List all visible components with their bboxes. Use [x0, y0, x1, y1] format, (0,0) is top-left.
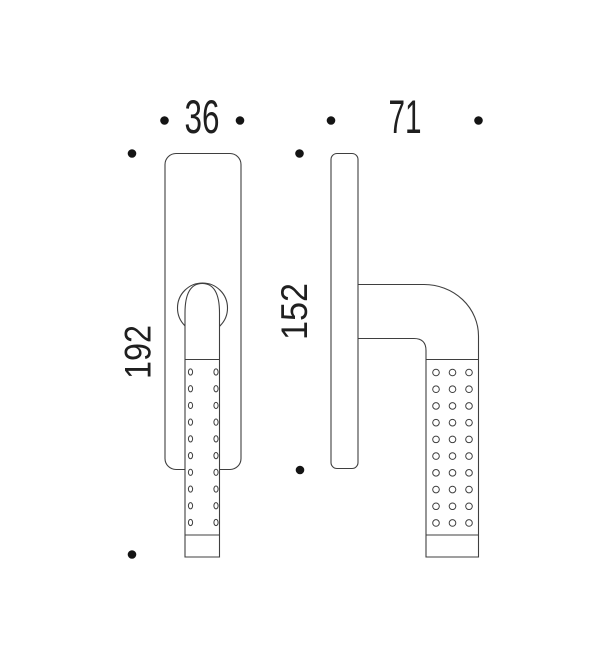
knurl-dot: [449, 453, 456, 460]
knurl-dot: [188, 419, 192, 425]
knurl-dot: [433, 403, 440, 410]
dimension-marker-dot: [128, 550, 137, 559]
knurl-dot: [466, 403, 473, 410]
dimension-marker-dot: [474, 116, 483, 125]
knurl-dot: [433, 436, 440, 443]
knurl-dot: [188, 469, 192, 475]
front-view: [165, 154, 241, 558]
dimension-marker-dot: [295, 149, 304, 158]
knurl-dot: [214, 519, 218, 525]
knurl-dot: [433, 520, 440, 527]
knurl-dot: [433, 503, 440, 510]
knurl-dot: [433, 386, 440, 393]
knurl-dot: [433, 419, 440, 426]
knurl-dot: [433, 369, 440, 376]
knurl-dot: [466, 386, 473, 393]
knurl-dot: [188, 519, 192, 525]
knurl-dot: [449, 403, 456, 410]
front-height-dimension: 192: [118, 325, 159, 379]
side-view: [331, 154, 479, 558]
knurl-dot: [466, 453, 473, 460]
dimension-marker-dot: [327, 116, 336, 125]
knurl-dot: [214, 469, 218, 475]
knurl-dot: [214, 453, 218, 459]
knurl-dot: [449, 503, 456, 510]
knurl-dot: [214, 369, 218, 375]
knurl-dot: [214, 486, 218, 492]
knurl-dot: [466, 486, 473, 493]
knurl-dot: [214, 419, 218, 425]
knurl-dot: [433, 486, 440, 493]
dimension-marker-dot: [296, 466, 305, 475]
knurl-dot: [449, 386, 456, 393]
knurl-dot: [188, 486, 192, 492]
knurl-dot: [466, 436, 473, 443]
side-backplate: [331, 154, 358, 469]
knurl-dot: [433, 453, 440, 460]
knurl-dot: [449, 369, 456, 376]
knurl-dot: [466, 520, 473, 527]
dimension-marker-dot: [236, 116, 245, 125]
side-handle-outline: [358, 285, 479, 558]
knurl-dot: [188, 503, 192, 509]
knurl-dot: [188, 369, 192, 375]
knurl-dot: [466, 470, 473, 477]
dimension-marker-dot: [128, 149, 137, 158]
knurl-dot: [449, 486, 456, 493]
knurl-dot: [466, 503, 473, 510]
side-depth-dimension: 71: [389, 90, 422, 143]
technical-drawing: 36 71 192 152: [0, 0, 600, 670]
knurl-dot: [188, 402, 192, 408]
knurl-dot: [449, 419, 456, 426]
front-width-dimension: 36: [185, 90, 220, 143]
knurl-dot: [449, 520, 456, 527]
knurl-dot: [188, 453, 192, 459]
plate-height-dimension: 152: [274, 283, 315, 340]
knurl-dot: [188, 436, 192, 442]
knurl-dot: [449, 470, 456, 477]
dimension-marker-dot: [160, 116, 169, 125]
knurl-dot: [449, 436, 456, 443]
knurl-dot: [214, 402, 218, 408]
knurl-dot: [214, 503, 218, 509]
knurl-dot: [214, 436, 218, 442]
knurl-dot: [433, 470, 440, 477]
knurl-dot: [214, 386, 218, 392]
knurl-dot: [466, 419, 473, 426]
knurl-dot: [466, 369, 473, 376]
drawing-canvas: 36 71 192 152: [0, 0, 600, 670]
knurl-dot: [188, 386, 192, 392]
